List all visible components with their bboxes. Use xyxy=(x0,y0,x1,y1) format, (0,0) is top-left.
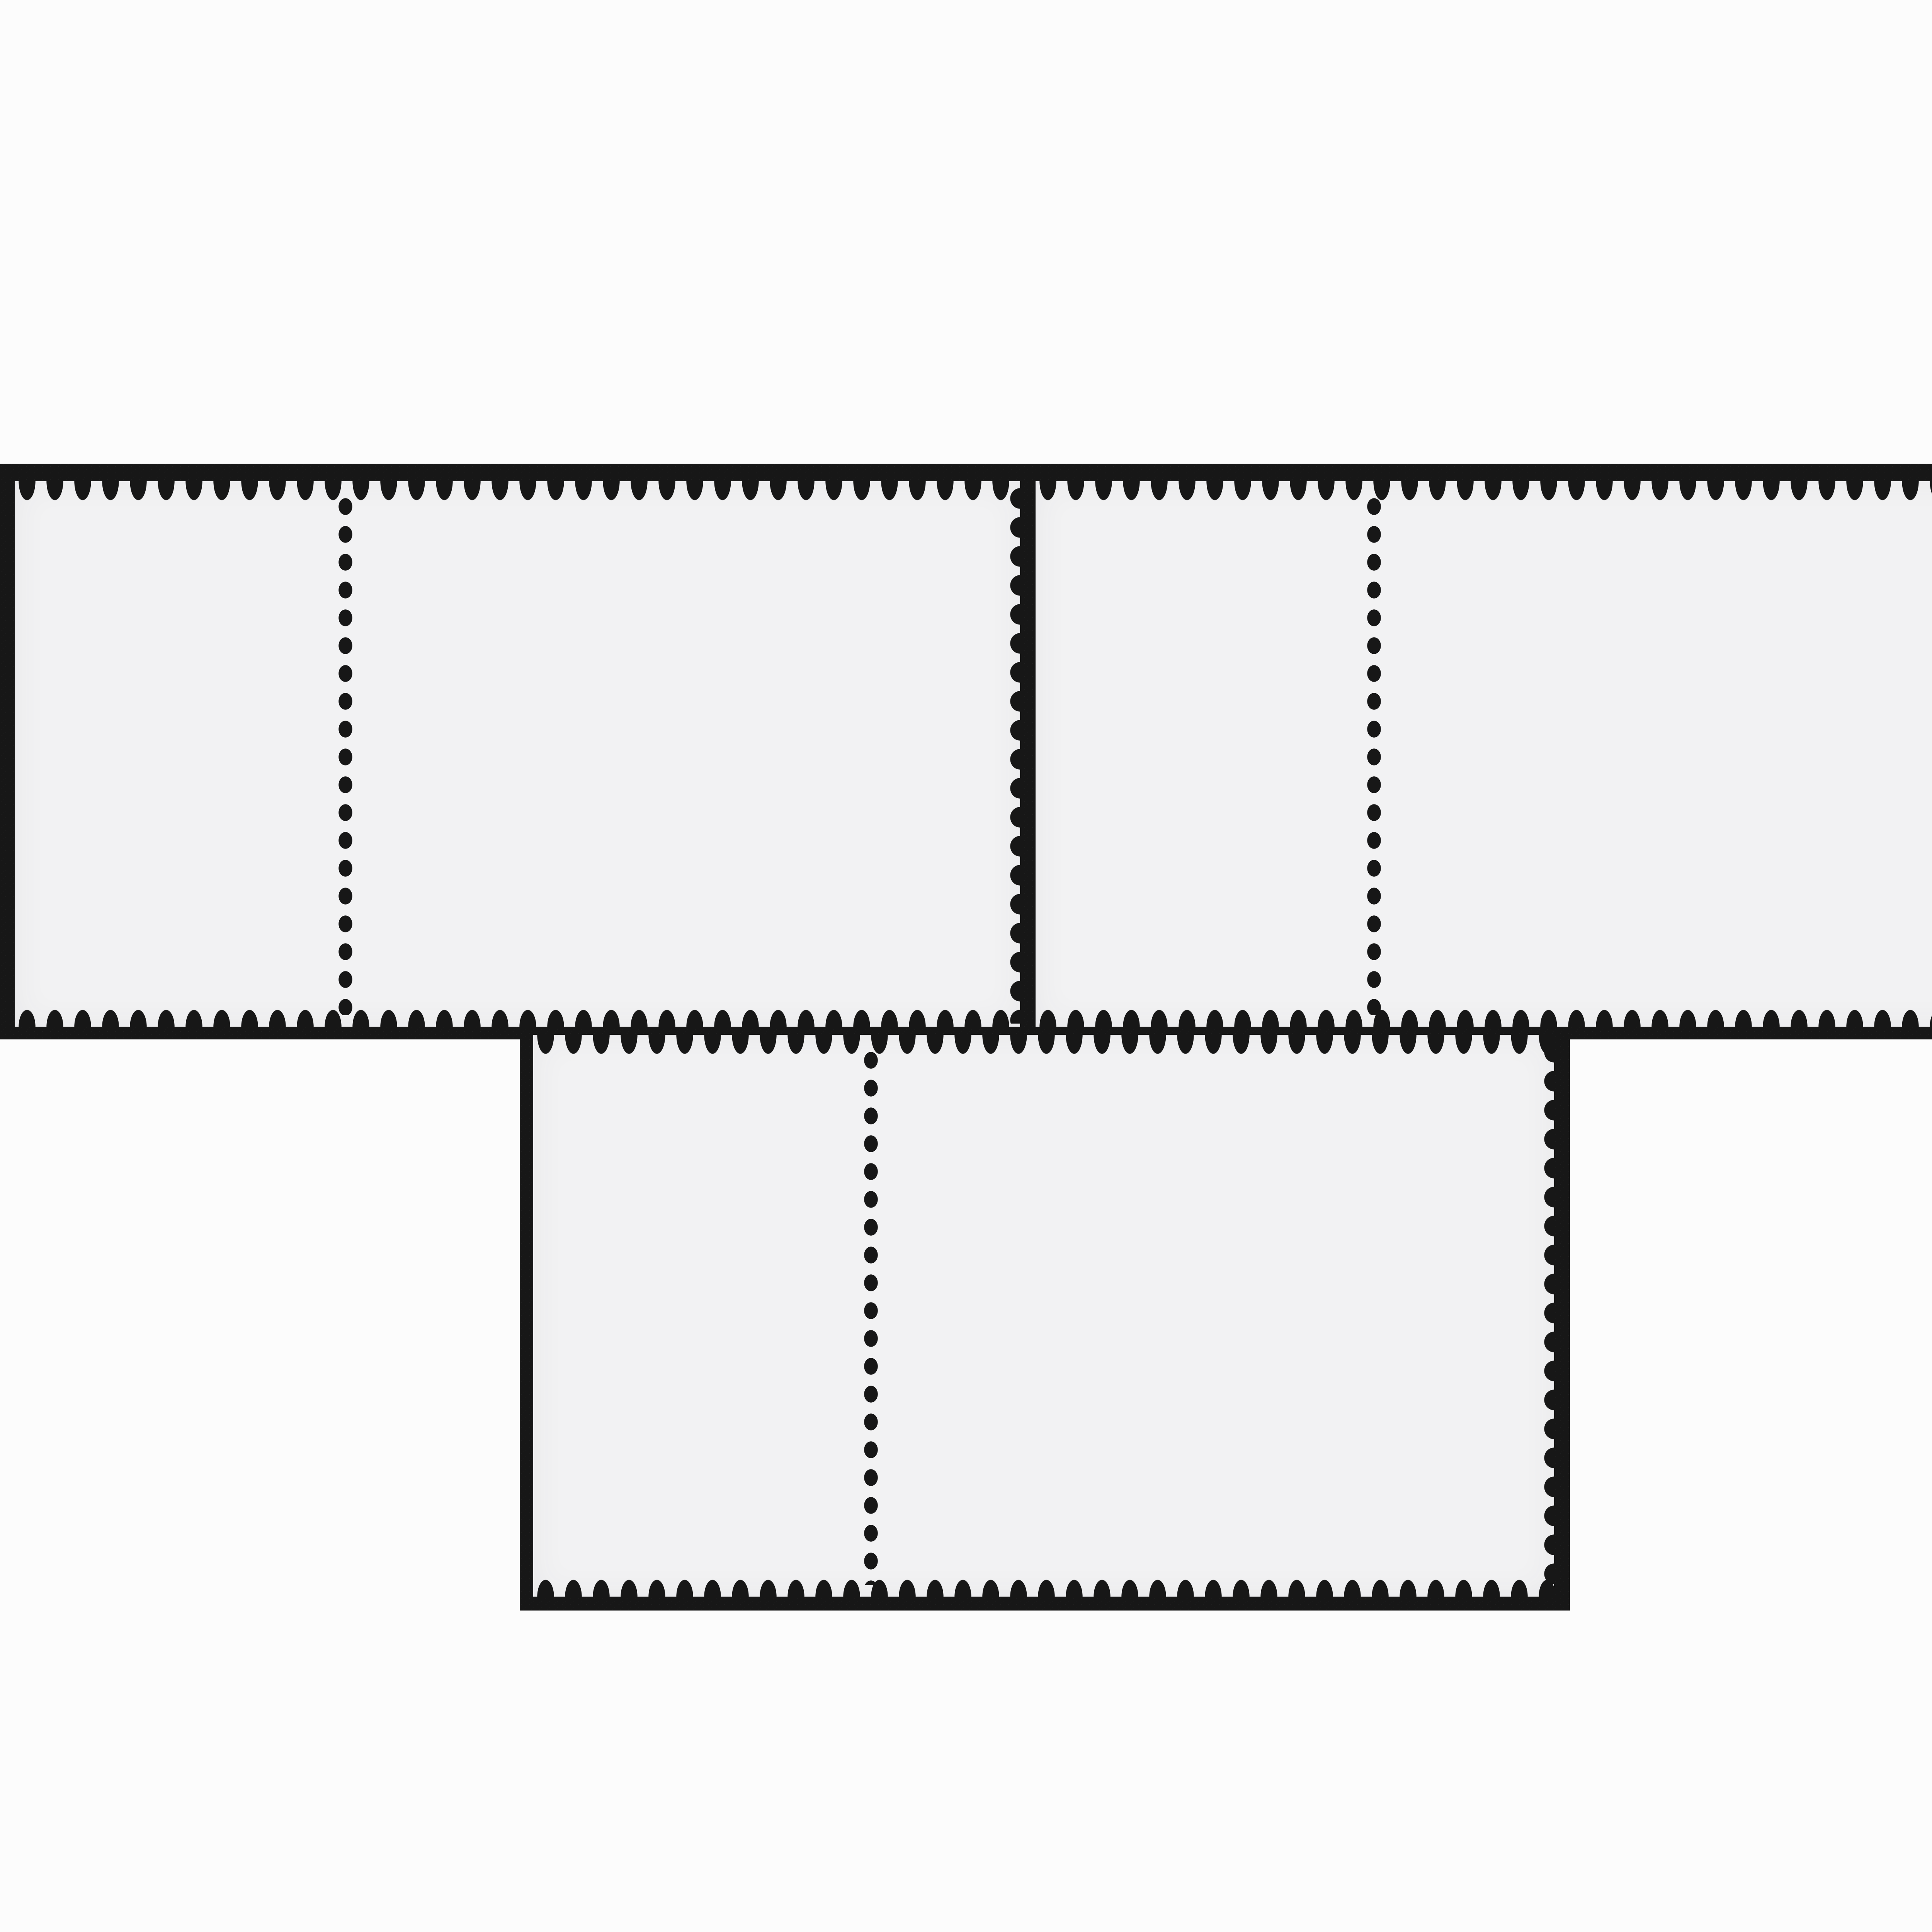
perforation-edge-top xyxy=(1034,481,1932,500)
stamp-scan-page xyxy=(0,0,1932,1932)
stamp-pair-top-right xyxy=(1036,481,1932,1027)
stamp-pair-top-left xyxy=(15,481,1020,1027)
perforation-column xyxy=(864,1046,878,1585)
perforation-column xyxy=(1367,493,1381,1015)
perforation-edge-bottom xyxy=(1034,1010,1932,1027)
perforation-edge-top xyxy=(13,481,1022,500)
perforation-edge-right xyxy=(1010,484,1020,1024)
perforation-edge-right xyxy=(1544,1038,1554,1594)
perforation-column xyxy=(338,493,352,1015)
stamp-pair-bottom-center xyxy=(533,1035,1554,1597)
perforation-edge-bottom xyxy=(532,1580,1556,1597)
perforation-edge-bottom xyxy=(13,1010,1022,1027)
perforation-edge-top xyxy=(532,1035,1556,1054)
